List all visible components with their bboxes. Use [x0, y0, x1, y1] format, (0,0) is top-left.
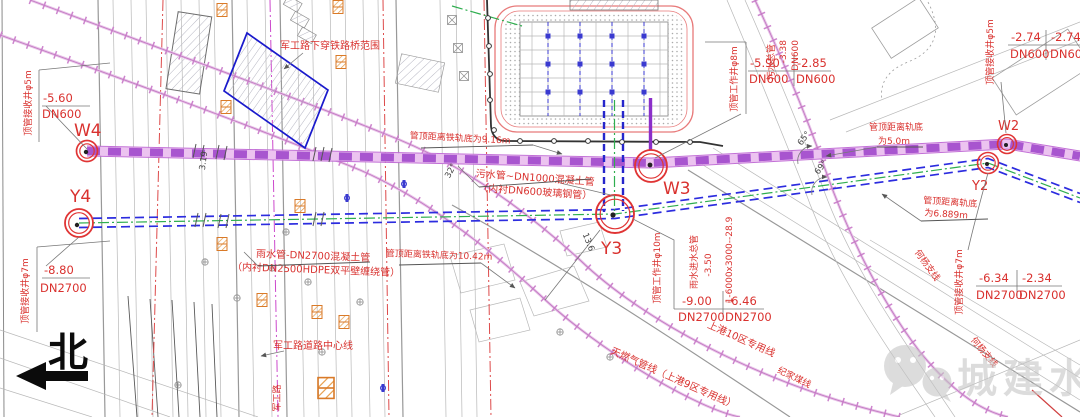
y3-box-size: 1-6000x3000--28.9 — [725, 216, 735, 303]
building-site — [452, 0, 723, 146]
callout-y4: -8.80 DN2700 顶管接收井φ7m — [19, 237, 110, 332]
y3-elevation-1: -9.00 — [682, 294, 712, 308]
wechat-logo-icon — [884, 345, 952, 402]
rail-label-a: 上港10区专用线 — [706, 318, 778, 359]
w2-elevation-1: -2.74 — [1011, 30, 1041, 44]
dim-label-2: 3.19 — [198, 151, 210, 171]
w3-elevation-2: -2.85 — [797, 56, 827, 70]
w4-elevation: -5.60 — [43, 91, 73, 105]
rail-label-d: 何杨支线 — [912, 247, 943, 283]
node-y4: Y4 — [65, 187, 93, 237]
w3-main-elevation: -3.38 — [779, 40, 789, 64]
callout-w2: -2.74 DN600 -2.74 DN600 顶管接收井φ5m — [984, 19, 1080, 133]
node-y2: Y2 — [971, 153, 999, 195]
clearance-label-2: 管顶距离铁轨底为10.42m — [386, 247, 493, 263]
w4-shaft-label: 顶管接收井φ5m — [22, 70, 34, 135]
y3-shaft-label: 顶管工作井φ10m — [651, 232, 663, 303]
y3-diameter-1: DN2700 — [678, 310, 725, 324]
y2-elevation-2: -2.34 — [1022, 271, 1052, 285]
w2-diameter-1: DN600 — [1010, 47, 1049, 61]
bridge-zone-label: 军工路下穿铁路桥范围 — [280, 39, 380, 52]
y2-diameter-2: DN2700 — [1019, 288, 1066, 302]
rain-pipe-label-1: 雨水管-DN2700混凝土管 — [256, 247, 371, 264]
w2-diameter-2: DN600 — [1050, 47, 1080, 61]
clearance-label-4a: 管顶距离轨底 — [923, 194, 978, 210]
w2-elevation-2: -2.74 — [1051, 30, 1080, 44]
y3-diameter-2: DN2700 — [725, 310, 772, 324]
y2-shaft-label: 顶管接收井φ7m — [953, 249, 965, 314]
clearance-label-3a: 管顶距离轨底 — [869, 121, 923, 133]
node-w3-label: W3 — [663, 179, 691, 199]
y4-shaft-label: 顶管接收井φ7m — [19, 258, 31, 323]
w3-shaft-label: 顶管工作井φ8m — [728, 46, 740, 111]
road-name-label: 军工路 — [271, 384, 283, 411]
watermark-text: 城建水业 — [957, 356, 1080, 402]
node-w2-label: W2 — [998, 119, 1019, 134]
angle-label-3: 32° — [443, 162, 459, 180]
clearance-label-3b: 为5.0m — [878, 135, 910, 147]
y4-elevation: -8.80 — [44, 263, 74, 277]
w3-diameter-2: DN600 — [796, 72, 835, 86]
node-y3-label: Y3 — [600, 239, 622, 259]
y2-diameter-1: DN2700 — [976, 288, 1023, 302]
site-plan-svg: W4 Y4 W3 Y3 W2 Y2 -5.60 DN600 顶管接收井φ5m -… — [0, 0, 1080, 417]
sewage-pipeline — [87, 139, 1080, 168]
callout-y2: -6.34 DN2700 -2.34 DN2700 顶管接收井φ7m — [953, 173, 1066, 315]
w4-diameter: DN600 — [42, 107, 81, 121]
w3-main-diameter: DN600 — [791, 40, 801, 71]
dim-label-1: 13.6 — [580, 232, 596, 253]
y3-main-label: 雨水进水总管 — [688, 235, 700, 289]
node-y4-label: Y4 — [69, 187, 91, 207]
north-label: 北 — [48, 330, 88, 376]
node-w4-label: W4 — [74, 121, 102, 141]
y3-main-elevation: -3.50 — [704, 253, 714, 277]
w3-main-label: 污水总管 — [765, 44, 777, 80]
engineering-plan: W4 Y4 W3 Y3 W2 Y2 -5.60 DN600 顶管接收井φ5m -… — [0, 0, 1080, 417]
y2-elevation-1: -6.34 — [979, 271, 1009, 285]
road-centerline-label: 军工路道路中心线 — [273, 339, 353, 352]
y4-diameter: DN2700 — [40, 281, 87, 295]
w2-shaft-label: 顶管接收井φ5m — [984, 19, 996, 84]
